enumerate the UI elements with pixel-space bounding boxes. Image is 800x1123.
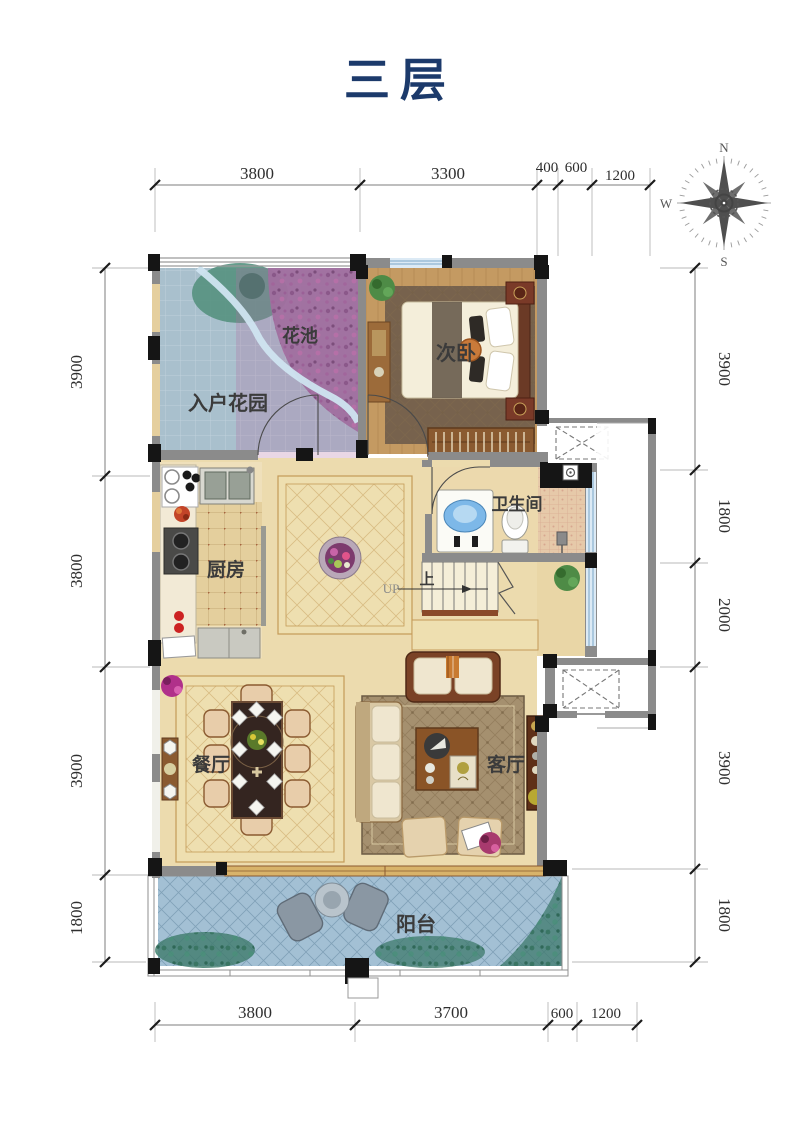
dim-left-3: 3900 [67,754,86,788]
dim-top-2: 3300 [431,164,465,183]
stair-edge [422,610,498,616]
balcony-label: 阳台 [396,912,436,936]
fruit-bowl [174,506,190,522]
dim-left-1: 3900 [67,355,86,389]
kitchen-label: 厨房 [207,558,245,581]
dim-left-4: 1800 [67,901,86,935]
living-label: 客厅 [487,753,525,776]
floorplan-drawing: N W S 3800 3 [0,0,800,1123]
dim-bottom-2: 3700 [434,1003,468,1022]
dimension-top: 3800 3300 400 600 1200 [150,160,655,190]
dim-right-4: 3900 [715,751,734,785]
kitchen: 厨房 [160,462,262,658]
kitchen-sink [200,467,254,505]
compass-west-label: W [660,196,673,211]
bedroom-label: 次卧 [436,341,476,365]
dim-left-2: 3800 [67,554,86,588]
sideboard [162,738,178,800]
plant [554,565,580,591]
dim-bottom-1: 3800 [238,1003,272,1022]
fridge [162,636,195,658]
stairs-up-label: 上 [419,571,434,588]
balcony-footing [348,978,378,998]
dim-top-1: 3800 [240,164,274,183]
cooktop [164,528,198,574]
dining-label: 餐厅 [192,753,230,776]
sink [437,490,493,552]
wardrobe [428,428,534,456]
hob [162,467,201,507]
jar [174,611,184,621]
hall-flower-table [319,537,361,579]
coffee-table [416,728,478,790]
dim-top-3: 400 [536,160,559,176]
entry-garden: 花池 入户花园 [160,263,358,458]
stairs-up-en-label: UP [383,581,400,596]
compass-south-label: S [720,254,727,269]
dimension-right: 3900 1800 2000 3900 1800 [690,263,734,967]
compass-north-label: N [719,140,729,155]
jar [174,623,184,633]
loveseat [406,652,500,702]
dim-top-4: 600 [565,160,588,176]
dim-right-5: 1800 [715,898,734,932]
kitchen-cabinet [198,628,260,658]
dim-bottom-3: 600 [551,1006,574,1022]
dimension-left: 3900 3800 3900 1800 [67,263,110,967]
page-title: 三层 [0,44,800,110]
dim-right-2: 1800 [715,499,734,533]
bathroom-label: 卫生间 [492,494,543,514]
dimension-bottom: 3800 3700 600 1200 [150,1003,642,1030]
dim-right-1: 3900 [715,352,734,386]
centerpiece [247,730,267,750]
bedroom: 次卧 [366,268,537,456]
flower-bed-label: 花池 [282,325,318,346]
compass-icon: N W S [660,140,788,269]
sofa [356,702,402,822]
dim-bottom-4: 1200 [591,1006,621,1022]
entry-garden-label: 入户花园 [188,391,268,415]
floorplan-page: 三层 [0,0,800,1123]
dim-right-3: 2000 [715,598,734,632]
plant [369,275,395,301]
dim-top-5: 1200 [605,168,635,184]
ottoman [402,817,448,858]
